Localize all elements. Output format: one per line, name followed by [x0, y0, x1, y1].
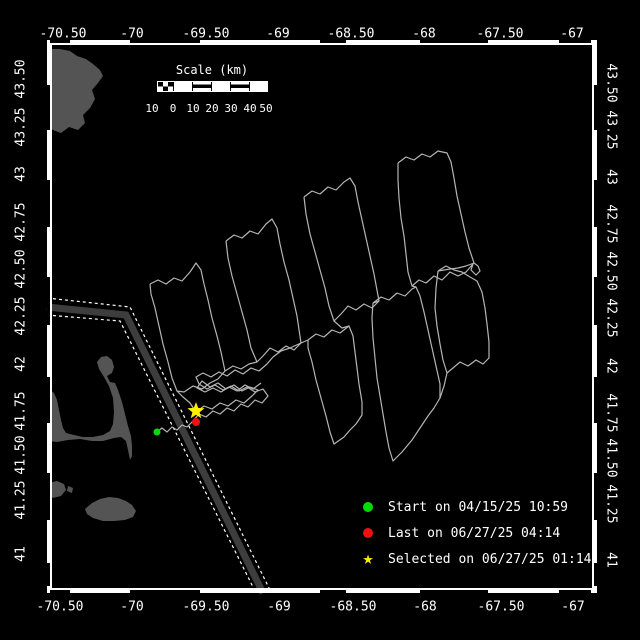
frame-tick-segment — [594, 563, 597, 586]
frame-tick-segment — [420, 590, 488, 593]
glider-track — [308, 326, 362, 444]
legend-label: Start on 04/15/25 10:59 — [388, 500, 568, 515]
axis-tick-label: -67 — [561, 600, 584, 615]
scale-bar-number: 20 — [205, 102, 218, 115]
scale-bar-stripe — [192, 85, 211, 89]
frame-tick-segment — [594, 377, 597, 423]
axis-tick-label: 43.25 — [604, 110, 619, 149]
glider-track — [435, 266, 489, 373]
landmass — [49, 49, 103, 133]
glider-track — [304, 178, 379, 321]
axis-tick-label: -68.50 — [328, 27, 375, 42]
axis-tick-label: -70 — [120, 27, 143, 42]
axis-tick-label: 42.75 — [604, 204, 619, 243]
star-icon: ★ — [356, 552, 380, 566]
scale-bar-number: 50 — [259, 102, 272, 115]
landmass — [67, 486, 73, 493]
scale-bar-number: 0 — [170, 102, 177, 115]
axis-tick-label: 43 — [14, 166, 29, 182]
glider-track — [225, 362, 257, 371]
scale-bar-divider — [230, 82, 231, 91]
landmass — [85, 497, 136, 521]
axis-tick-label: 43 — [604, 169, 619, 185]
frame-tick-segment — [130, 590, 200, 593]
axis-tick-label: 42 — [14, 356, 29, 372]
axis-tick-label: 42.75 — [14, 202, 29, 241]
scale-bar-divider — [192, 82, 193, 91]
scale-bar-number: 40 — [243, 102, 256, 115]
glider-track — [372, 287, 440, 461]
axis-tick-label: -68 — [412, 27, 435, 42]
axis-tick-label: 41 — [604, 552, 619, 568]
axis-tick-label: -69 — [267, 600, 290, 615]
dot-icon — [356, 528, 380, 538]
scale-bar-divider — [211, 82, 212, 91]
glider-track — [150, 263, 225, 392]
axis-tick-label: -69.50 — [183, 27, 230, 42]
axis-tick-label: 42.25 — [14, 296, 29, 335]
axis-tick-label: 41.25 — [604, 484, 619, 523]
shipping-lane-band — [47, 307, 263, 593]
legend-row: Start on 04/15/25 10:59 — [356, 494, 592, 520]
scale-bar-checker — [163, 87, 168, 92]
map-canvas: -70.50-70-69.50-69-68.50-68-67.50-67 -70… — [0, 0, 640, 640]
scale-bar-number: 10 — [186, 102, 199, 115]
last-marker — [192, 418, 200, 426]
shipping-lane-edge — [47, 315, 256, 593]
frame-tick-segment — [320, 590, 346, 593]
glider-track — [226, 219, 301, 362]
landmass — [49, 356, 132, 460]
frame-tick-segment — [47, 377, 50, 423]
axis-tick-label: -70.50 — [37, 600, 84, 615]
axis-tick-label: 41.25 — [14, 480, 29, 519]
glider-track — [440, 373, 447, 398]
scale-bar-number: 30 — [224, 102, 237, 115]
legend: Start on 04/15/25 10:59Last on 06/27/25 … — [356, 494, 592, 572]
dot-icon — [363, 528, 373, 538]
dot-icon — [363, 502, 373, 512]
axis-tick-label: 43.50 — [604, 63, 619, 102]
frame-tick-segment — [594, 277, 597, 325]
dot-icon — [356, 502, 380, 512]
axis-tick-label: 42.50 — [604, 251, 619, 290]
axis-tick-label: -67.50 — [478, 600, 525, 615]
axis-tick-label: 41.50 — [14, 435, 29, 474]
axis-tick-label: 41 — [14, 546, 29, 562]
frame-tick-segment — [47, 563, 50, 586]
axis-tick-label: 41.75 — [604, 393, 619, 432]
glider-track — [412, 286, 416, 287]
axis-tick-label: 42.25 — [604, 298, 619, 337]
scale-bar-checker — [158, 82, 163, 87]
axis-tick-label: -70.50 — [40, 27, 87, 42]
frame-tick-segment — [47, 85, 50, 130]
scale-bar-stripe — [230, 85, 249, 89]
legend-label: Last on 06/27/25 04:14 — [388, 526, 560, 541]
axis-tick-label: 41.75 — [14, 391, 29, 430]
start-marker — [154, 429, 161, 436]
axis-tick-label: 43.25 — [14, 107, 29, 146]
axis-tick-label: 43.50 — [14, 59, 29, 98]
legend-row: Last on 06/27/25 04:14 — [356, 520, 592, 546]
axis-tick-label: 41.50 — [604, 438, 619, 477]
axis-tick-label: 42.50 — [14, 249, 29, 288]
scale-bar-divider — [249, 82, 250, 91]
frame-tick-segment — [47, 277, 50, 325]
axis-tick-label: -67 — [560, 27, 583, 42]
frame-tick-segment — [47, 473, 50, 520]
scale-bar-checker — [168, 82, 173, 87]
axis-tick-label: -67.50 — [477, 27, 524, 42]
frame-tick-segment — [47, 180, 50, 227]
frame-tick-segment — [559, 590, 591, 593]
glider-track — [334, 321, 349, 328]
legend-label: Selected on 06/27/25 01:14 — [388, 552, 592, 567]
axis-tick-label: -68.50 — [330, 600, 377, 615]
frame-tick-segment — [50, 590, 70, 593]
frame-tick-segment — [594, 180, 597, 227]
axis-tick-label: -70 — [120, 600, 143, 615]
legend-row: ★Selected on 06/27/25 01:14 — [356, 546, 592, 572]
star-icon: ★ — [363, 552, 374, 566]
frame-tick-segment — [594, 473, 597, 520]
axis-tick-label: -69 — [266, 27, 289, 42]
axis-tick-label: 42 — [604, 358, 619, 374]
axis-tick-label: -68 — [413, 600, 436, 615]
scale-bar-number: 10 — [145, 102, 158, 115]
scale-bar-title: Scale (km) — [176, 63, 248, 77]
axis-tick-label: -69.50 — [183, 600, 230, 615]
frame-tick-segment — [594, 85, 597, 130]
scale-bar-divider — [173, 82, 174, 91]
